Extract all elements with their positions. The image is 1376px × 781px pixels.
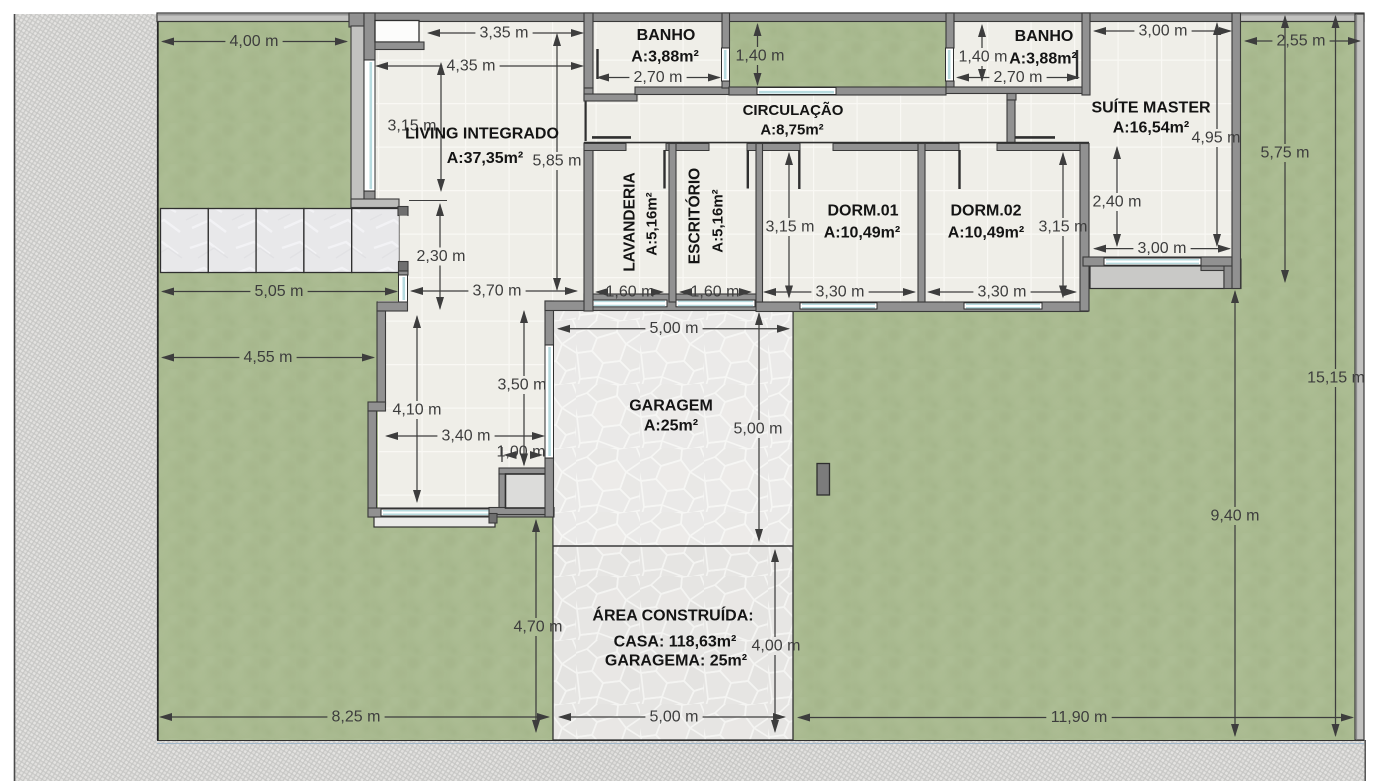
svg-text:ÁREA CONSTRUÍDA:: ÁREA CONSTRUÍDA: xyxy=(592,606,753,625)
svg-text:9,40 m: 9,40 m xyxy=(1211,508,1260,525)
svg-text:A:25m²: A:25m² xyxy=(644,418,698,435)
svg-text:A:3,88m²: A:3,88m² xyxy=(631,49,699,66)
svg-text:4,70 m: 4,70 m xyxy=(514,619,563,636)
svg-text:1,40 m: 1,40 m xyxy=(736,48,785,65)
svg-text:3,00 m: 3,00 m xyxy=(1139,23,1188,40)
svg-text:A:37,35m²: A:37,35m² xyxy=(447,150,523,167)
svg-text:ESCRITÓRIO: ESCRITÓRIO xyxy=(686,168,704,264)
svg-text:CASA: 118,63m²: CASA: 118,63m² xyxy=(614,634,737,651)
svg-text:4,35 m: 4,35 m xyxy=(447,58,496,75)
svg-text:4,55 m: 4,55 m xyxy=(244,349,293,366)
svg-text:3,30 m: 3,30 m xyxy=(816,284,865,301)
svg-text:4,95 m: 4,95 m xyxy=(1192,130,1241,147)
svg-text:A:5,16m²: A:5,16m² xyxy=(710,189,727,252)
svg-text:A:10,49m²: A:10,49m² xyxy=(948,225,1024,242)
svg-text:8,25 m: 8,25 m xyxy=(332,709,381,726)
svg-text:1,60 m: 1,60 m xyxy=(606,284,655,301)
svg-text:4,00 m: 4,00 m xyxy=(230,33,279,50)
svg-text:5,05 m: 5,05 m xyxy=(255,283,304,300)
svg-text:4,00 m: 4,00 m xyxy=(752,638,801,655)
svg-text:DORM.02: DORM.02 xyxy=(950,203,1021,220)
svg-text:A:8,75m²: A:8,75m² xyxy=(760,122,823,139)
svg-text:LAVANDERIA: LAVANDERIA xyxy=(622,172,639,271)
svg-text:1,40 m: 1,40 m xyxy=(959,49,1008,66)
svg-text:5,75 m: 5,75 m xyxy=(1261,145,1310,162)
svg-text:5,85 m: 5,85 m xyxy=(533,153,582,170)
svg-text:5,00 m: 5,00 m xyxy=(650,709,699,726)
svg-text:CIRCULAÇÃO: CIRCULAÇÃO xyxy=(743,101,844,119)
svg-text:5,00 m: 5,00 m xyxy=(734,421,783,438)
svg-text:2,70 m: 2,70 m xyxy=(634,69,683,86)
svg-text:4,10 m: 4,10 m xyxy=(393,402,442,419)
svg-text:2,30 m: 2,30 m xyxy=(417,248,466,265)
svg-text:3,30 m: 3,30 m xyxy=(978,284,1027,301)
svg-text:5,00 m: 5,00 m xyxy=(650,320,699,337)
svg-text:BANHO: BANHO xyxy=(637,27,696,44)
svg-text:GARAGEM: GARAGEM xyxy=(629,398,713,415)
svg-text:SUÍTE MASTER: SUÍTE MASTER xyxy=(1091,98,1211,117)
svg-text:11,90 m: 11,90 m xyxy=(1051,709,1108,726)
svg-text:A:16,54m²: A:16,54m² xyxy=(1113,120,1189,137)
svg-text:A:5,16m²: A:5,16m² xyxy=(644,192,661,255)
svg-text:2,40 m: 2,40 m xyxy=(1093,194,1142,211)
svg-text:GARAGEMA: 25m²: GARAGEMA: 25m² xyxy=(605,653,747,670)
svg-text:2,70 m: 2,70 m xyxy=(994,69,1043,86)
svg-text:3,35 m: 3,35 m xyxy=(480,25,529,42)
svg-text:A:10,49m²: A:10,49m² xyxy=(824,225,900,242)
svg-text:3,15 m: 3,15 m xyxy=(766,219,815,236)
svg-text:3,15 m: 3,15 m xyxy=(1039,219,1088,236)
svg-text:1,00 m: 1,00 m xyxy=(497,444,546,461)
svg-text:3,00 m: 3,00 m xyxy=(1138,240,1187,257)
svg-text:A:3,88m²: A:3,88m² xyxy=(1009,51,1077,68)
svg-text:DORM.01: DORM.01 xyxy=(827,203,898,220)
svg-text:3,70 m: 3,70 m xyxy=(473,283,522,300)
svg-text:BANHO: BANHO xyxy=(1015,28,1074,45)
svg-text:15,15 m: 15,15 m xyxy=(1307,370,1365,387)
svg-text:3,40 m: 3,40 m xyxy=(442,428,491,445)
svg-text:LIVING INTEGRADO: LIVING INTEGRADO xyxy=(405,126,559,143)
svg-text:3,50 m: 3,50 m xyxy=(498,377,547,394)
svg-text:2,55 m: 2,55 m xyxy=(1277,33,1326,50)
svg-text:1,60 m: 1,60 m xyxy=(691,284,740,301)
